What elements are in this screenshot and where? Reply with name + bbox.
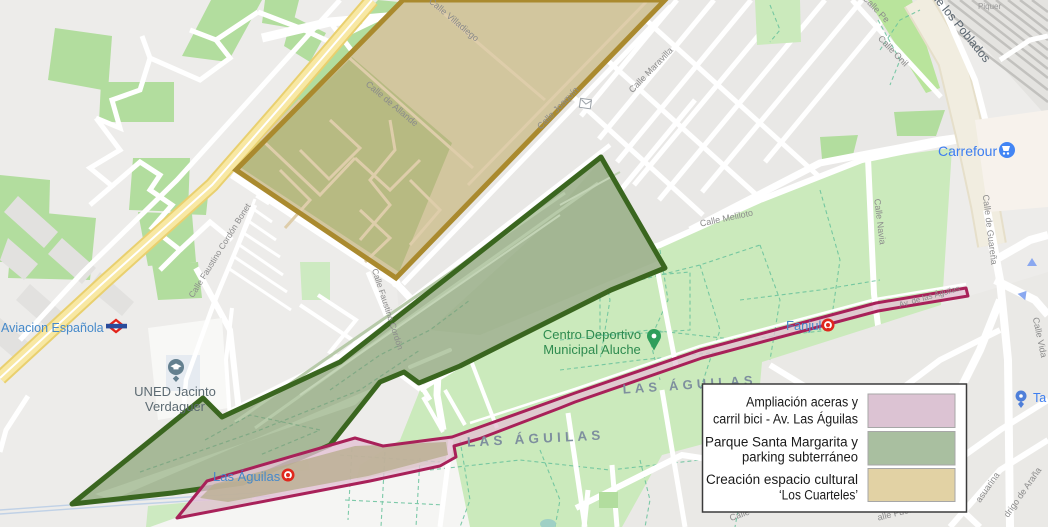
svg-text:Aviacion Española: Aviacion Española <box>1 321 104 335</box>
svg-text:UNED Jacinto: UNED Jacinto <box>134 384 216 399</box>
svg-text:Fanjul: Fanjul <box>786 318 822 333</box>
svg-text:Piquer: Piquer <box>978 2 1001 11</box>
svg-text:Parque Santa Margarita y: Parque Santa Margarita y <box>705 435 858 450</box>
svg-text:parking subterráneo: parking subterráneo <box>742 450 858 465</box>
svg-text:Ta: Ta <box>1033 391 1046 405</box>
svg-text:Centro Deportivo: Centro Deportivo <box>543 327 641 342</box>
svg-text:Las Águilas: Las Águilas <box>213 469 281 484</box>
svg-text:Creación espacio cultural: Creación espacio cultural <box>706 472 858 487</box>
svg-text:‘Los Cuarteles’: ‘Los Cuarteles’ <box>779 488 858 503</box>
svg-text:Verdaguer: Verdaguer <box>145 399 206 414</box>
svg-text:carril bici - Av. Las Águilas: carril bici - Av. Las Águilas <box>713 412 858 427</box>
svg-text:Municipal Aluche: Municipal Aluche <box>543 342 641 357</box>
svg-text:Carrefour: Carrefour <box>938 143 997 159</box>
svg-text:Ampliación aceras y: Ampliación aceras y <box>746 395 858 410</box>
